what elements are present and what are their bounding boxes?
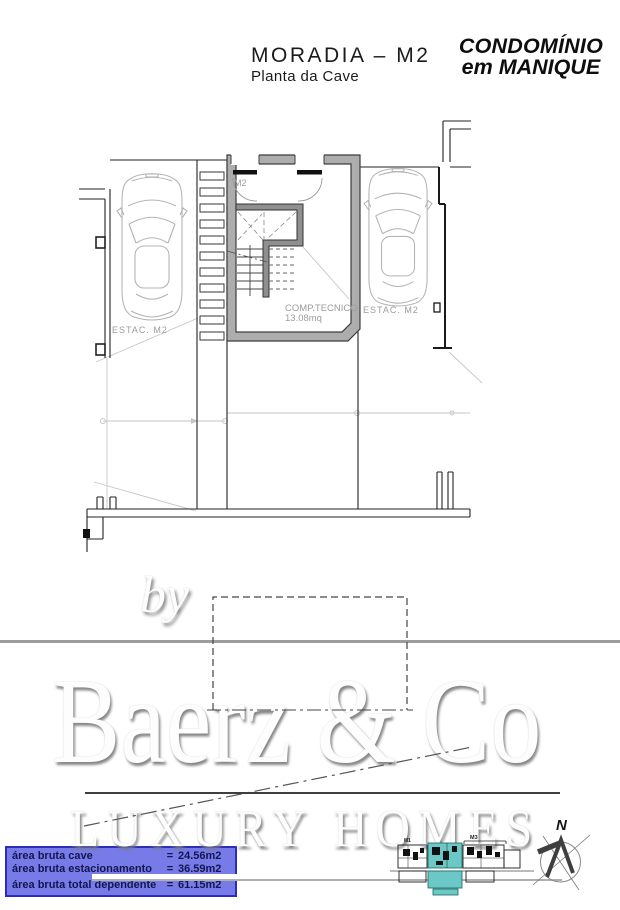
dashed-outline xyxy=(213,597,407,710)
door-opening xyxy=(295,152,324,165)
parking-right-label: ESTAC. M2 xyxy=(363,305,419,315)
door-leaf xyxy=(297,170,322,175)
highlighted-unit-lower xyxy=(428,871,462,888)
upper-floor-projection xyxy=(84,597,560,826)
key-site-plan: M1 M3 xyxy=(390,835,534,895)
car-icon-left xyxy=(117,174,187,320)
unit-bracket xyxy=(464,841,506,844)
condominio-logo: CONDOMÍNIO em MANIQUE xyxy=(459,36,603,78)
brochure-page: { "header": { "title": "MORADIA – M2", "… xyxy=(0,0,620,910)
right-unit-label: M3 xyxy=(470,835,478,841)
parking-left-label: ESTAC. M2 xyxy=(112,325,168,335)
basement-plan: M2 COMP.TECNICO 13.08mq ESTAC. M2 ESTAC.… xyxy=(79,121,482,552)
floor-plan-drawing: M2 COMP.TECNICO 13.08mq ESTAC. M2 ESTAC.… xyxy=(0,0,620,910)
stairs xyxy=(227,212,296,296)
tech-room-area-label: 13.08mq xyxy=(285,313,322,324)
stair-wall xyxy=(236,204,303,297)
logo-line2: em MANIQUE xyxy=(459,57,603,78)
north-label: N xyxy=(556,817,568,834)
page-subtitle: Planta da Cave xyxy=(251,68,359,85)
left-unit-label: M1 xyxy=(404,838,411,844)
car-icon-right xyxy=(364,169,432,306)
door-swing-arc xyxy=(298,178,322,201)
right-bay-wall xyxy=(433,167,452,348)
door-leaf xyxy=(233,170,257,175)
page-title: MORADIA – M2 xyxy=(251,44,430,68)
ramp-hatch-strip xyxy=(200,172,224,340)
tech-room: M2 COMP.TECNICO 13.08mq xyxy=(227,152,360,341)
construction-lines xyxy=(94,247,482,511)
boundary-dash-dot-line xyxy=(84,747,472,826)
wall-detail xyxy=(83,529,90,538)
stair-room-label: M2 xyxy=(234,178,247,188)
logo-line1: CONDOMÍNIO xyxy=(459,36,603,57)
compass: N xyxy=(533,817,590,890)
door-opening xyxy=(231,152,259,165)
highlighted-unit-tail xyxy=(433,889,458,895)
